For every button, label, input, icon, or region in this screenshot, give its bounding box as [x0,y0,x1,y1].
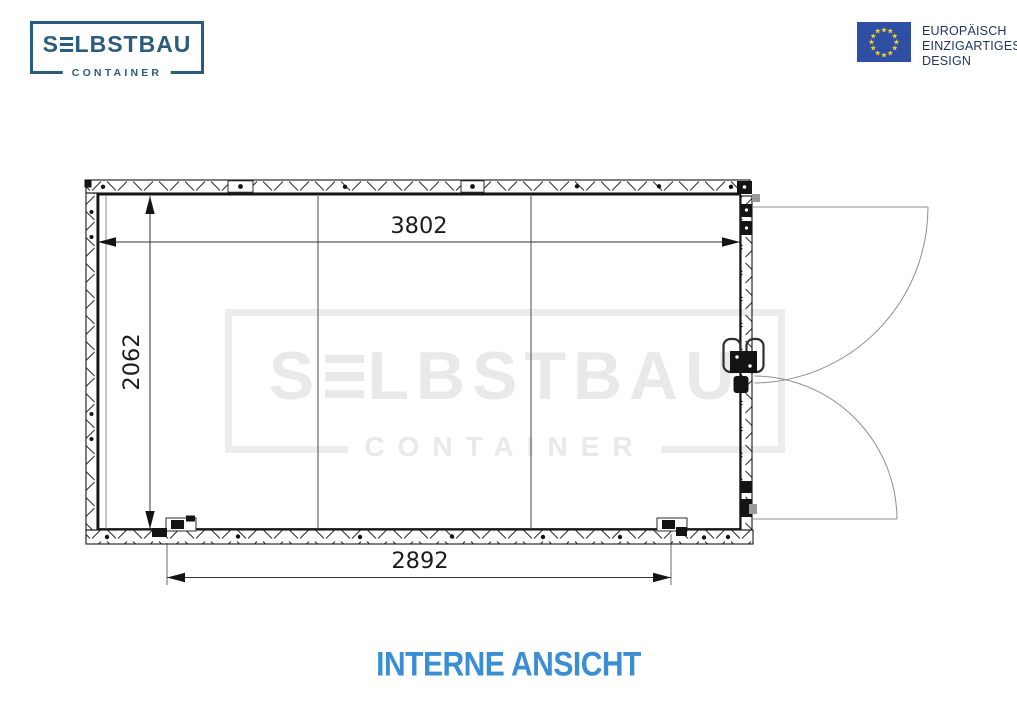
stylized-e-glyph [60,37,73,52]
page: SLBSTBAU CONTAINER [0,0,1017,715]
container-drawing: 3802 2062 2892 [0,0,1017,715]
dimension-label-3802: 3802 [390,213,447,239]
view-title: INTERNE ANSICHT [0,648,1017,682]
brand-name: SLBSTBAU [43,31,192,58]
star-icon: ★ [887,49,894,57]
dimension-interior-width: 3802 [98,213,740,247]
brand-subtitle: CONTAINER [63,67,171,79]
brand-logo: SLBSTBAU CONTAINER [30,21,204,74]
view-title-text: INTERNE ANSICHT [376,645,641,684]
interior-panel-joints [106,196,531,529]
brand-logo-box: SLBSTBAU CONTAINER [30,21,204,74]
dimension-interior-height: 2062 [119,196,155,529]
eu-flag-icon: ★ ★ ★ ★ ★ ★ ★ ★ ★ ★ ★ ★ [857,22,911,62]
door-swing-arcs [753,207,928,519]
eu-design-badge: ★ ★ ★ ★ ★ ★ ★ ★ ★ ★ ★ ★ EUROPÄISCH EINZI… [857,22,1017,69]
dimension-label-2062: 2062 [119,333,145,390]
eu-badge-text: EUROPÄISCH EINZIGARTIGES DESIGN [922,22,1017,69]
eu-badge-line: DESIGN [922,54,1017,69]
eu-badge-line: EINZIGARTIGES [922,39,1017,54]
dimension-label-2892: 2892 [391,548,448,574]
eu-badge-line: EUROPÄISCH [922,24,1017,39]
star-icon: ★ [874,27,881,35]
star-icon: ★ [881,51,888,59]
